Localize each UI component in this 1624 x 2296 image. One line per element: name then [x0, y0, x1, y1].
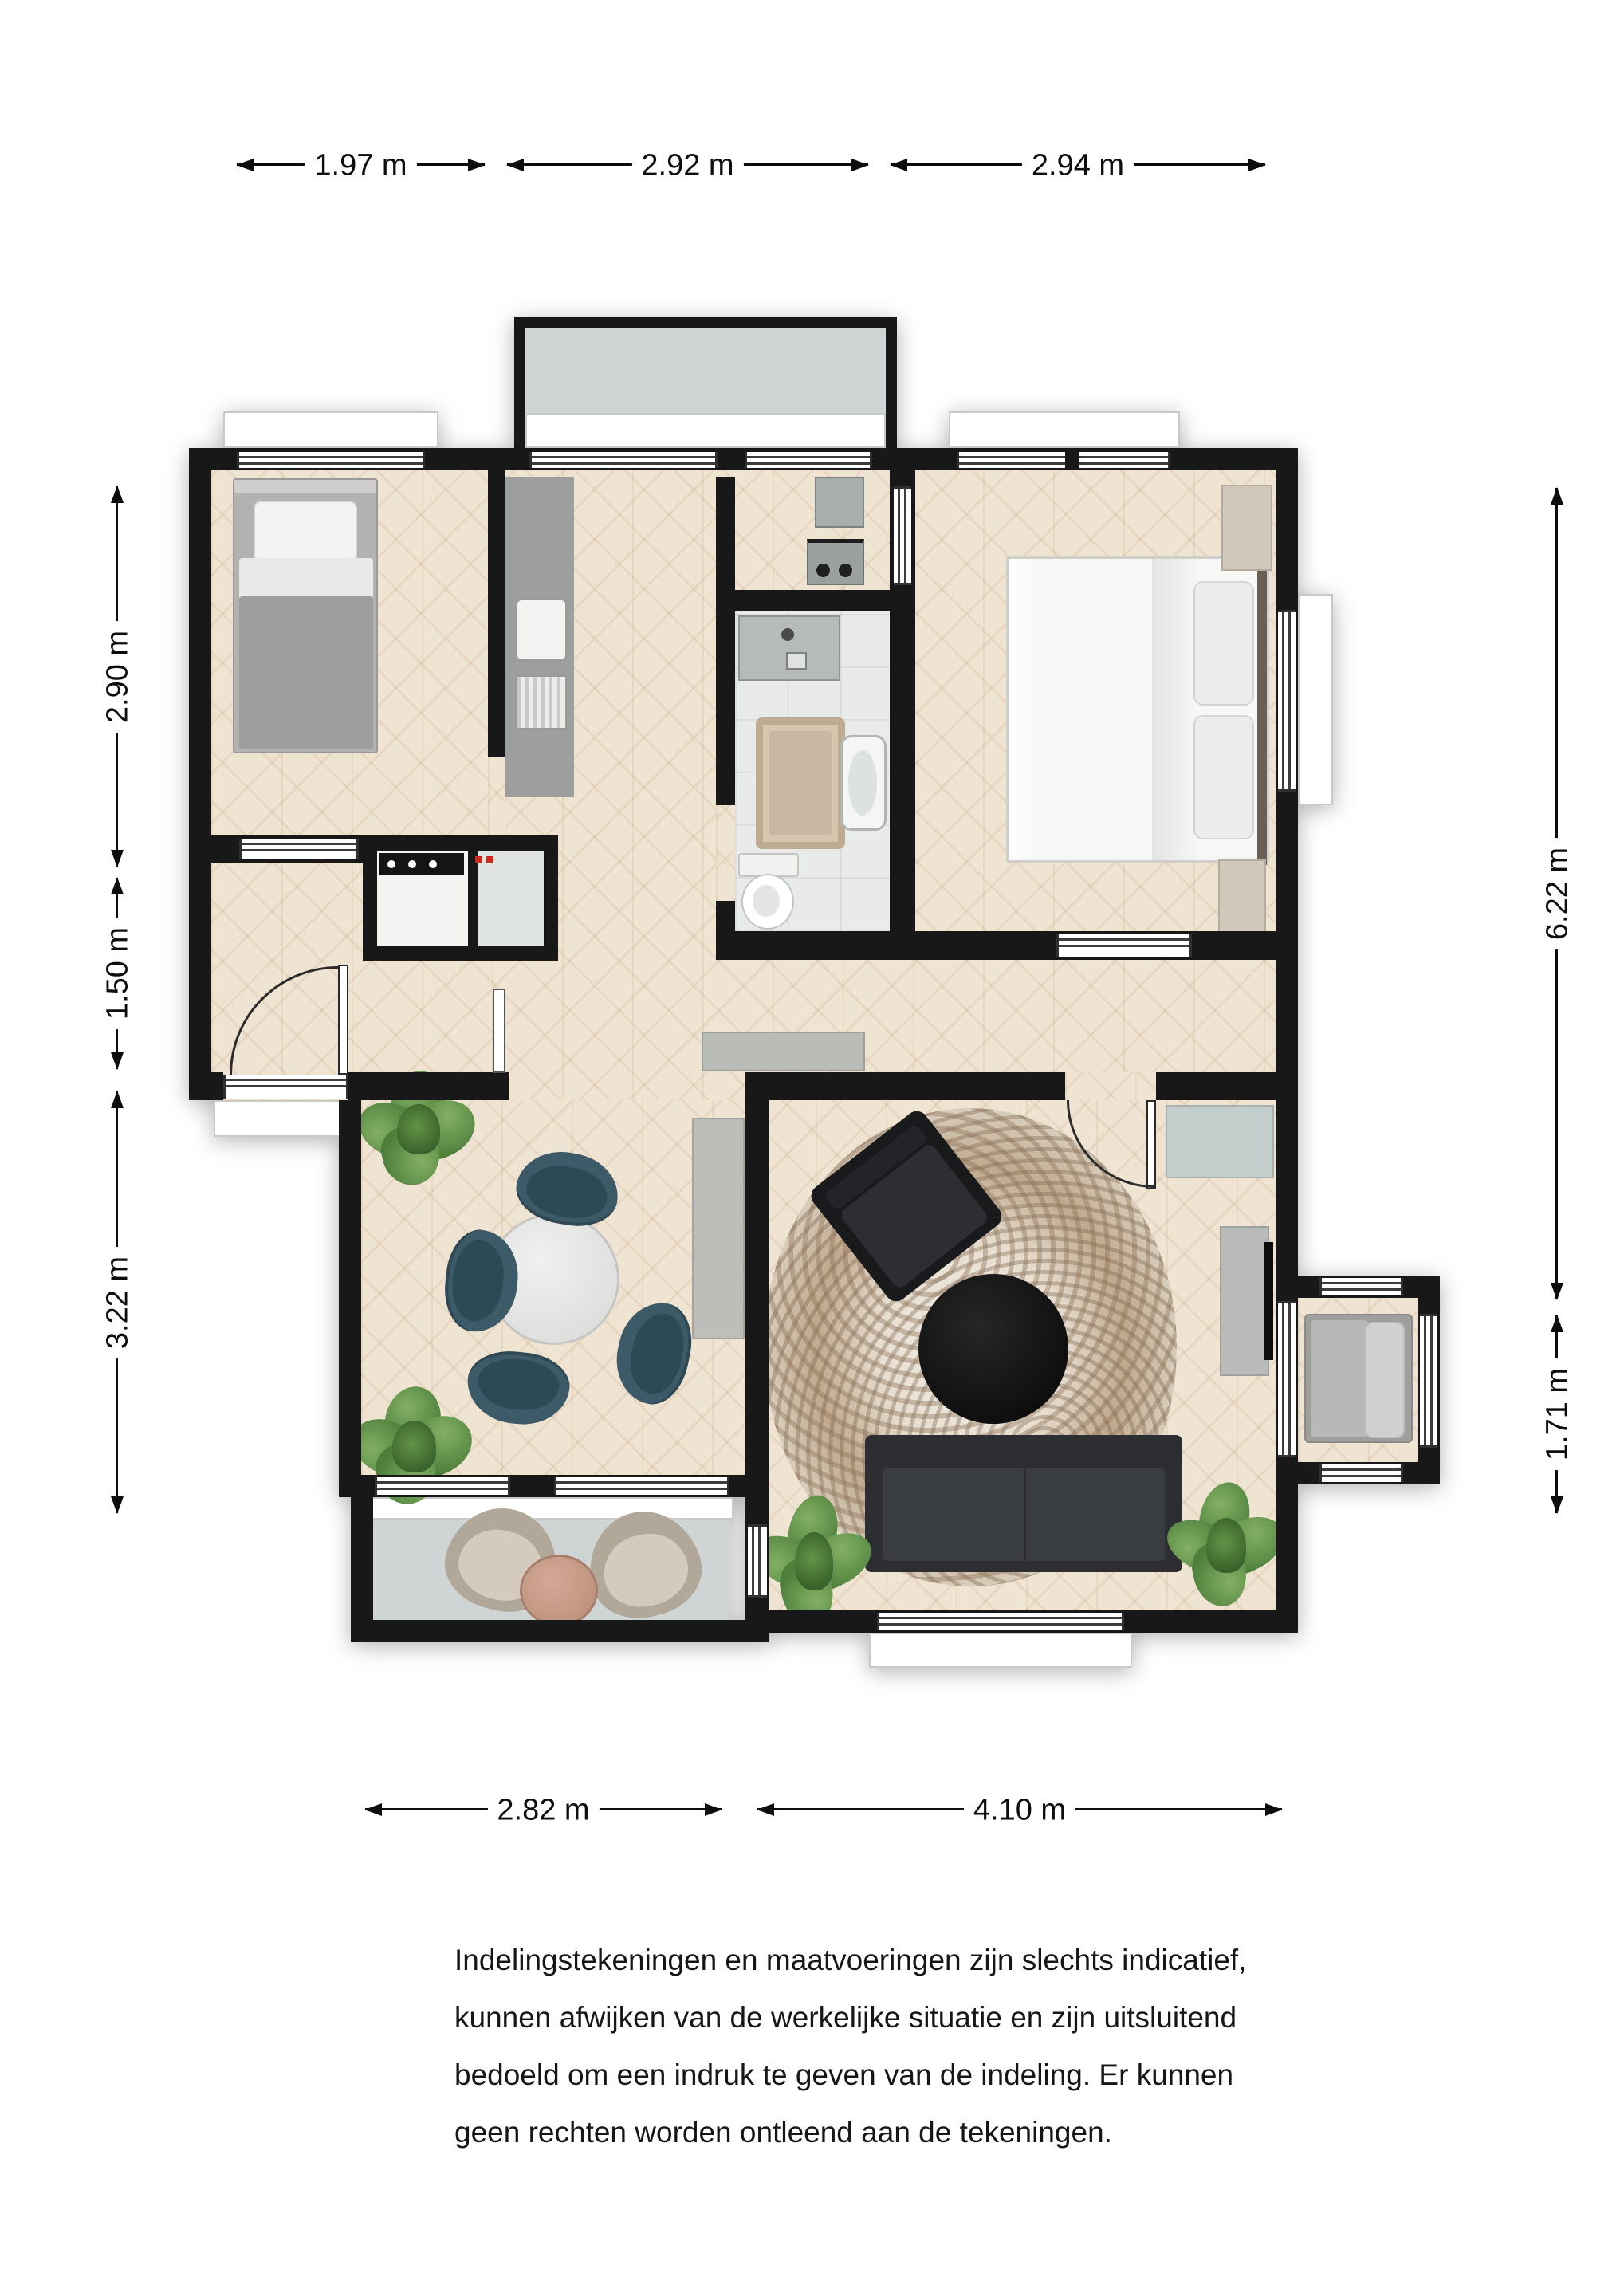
storage-cabinet	[1166, 1105, 1274, 1178]
wall-bathroom-top	[716, 590, 915, 611]
bed-headboard	[234, 480, 376, 493]
dimension-label: 1.97 m	[305, 147, 416, 185]
sideboard	[692, 1118, 745, 1339]
bed-sheet-fold	[239, 558, 373, 600]
window	[877, 1613, 1124, 1630]
window	[1319, 1464, 1403, 1482]
bath-mat	[756, 717, 845, 849]
stove-knob-red	[475, 856, 482, 863]
single-bed	[233, 478, 378, 753]
lounge-daybed	[1304, 1314, 1413, 1443]
wall-hall-south	[189, 1072, 223, 1100]
dimension-bottom-2: 4.10 m	[757, 1808, 1282, 1810]
dimension-left-1: 2.90 m	[116, 486, 118, 867]
wall-bathroom-bottom	[716, 931, 915, 960]
dimension-label: 3.22 m	[100, 1246, 137, 1358]
disclaimer-line: bedoeld om een indruk te geven van de in…	[454, 2058, 1233, 2092]
cooktop	[807, 539, 864, 585]
window	[375, 1477, 510, 1495]
balcony-wall	[514, 317, 525, 454]
tv-screen	[1264, 1242, 1273, 1360]
stove-knob-red	[486, 856, 493, 863]
sofa	[865, 1435, 1182, 1572]
window	[554, 1477, 729, 1495]
balcony-wall	[514, 317, 897, 328]
balcony-wall	[351, 1620, 769, 1642]
window	[1278, 610, 1296, 792]
window-sill	[525, 413, 886, 448]
nightstand	[1218, 859, 1266, 939]
faucet-icon	[781, 628, 794, 641]
entry-threshold	[214, 1100, 357, 1137]
dimension-label: 2.90 m	[100, 620, 137, 732]
wall-hall-south	[1156, 1072, 1276, 1100]
window	[745, 452, 872, 468]
window	[529, 452, 718, 468]
kitchen-counter	[502, 477, 574, 797]
balcony-side-table	[520, 1555, 598, 1626]
wall-bedroom1-right	[488, 470, 505, 757]
dimension-label: 4.10 m	[964, 1792, 1075, 1830]
plant	[767, 1497, 859, 1623]
floorplan-page: 1.97 m 2.92 m 2.94 m 2.90 m 1.50 m 3.22 …	[0, 0, 1624, 2296]
window	[1420, 1314, 1437, 1448]
closet-appliance	[379, 853, 464, 875]
entry-door-leaf	[338, 965, 348, 1075]
double-bed	[1006, 556, 1269, 863]
disclaimer-line: geen rechten worden ontleend aan de teke…	[454, 2116, 1112, 2149]
dimension-top-1: 1.97 m	[237, 163, 485, 166]
dimension-label: 1.50 m	[100, 918, 137, 1029]
bed-duvet-fold	[1009, 559, 1040, 860]
bathroom-vanity	[738, 615, 840, 681]
kitchen-oven	[515, 598, 568, 662]
dimension-left-3: 3.22 m	[116, 1091, 118, 1513]
dimension-label: 2.94 m	[1022, 147, 1134, 185]
window	[1319, 1278, 1403, 1295]
wall-hall-south	[745, 1072, 1065, 1100]
window	[237, 452, 425, 468]
window-sill	[949, 411, 1180, 448]
bed-pillow	[1193, 715, 1254, 839]
interior-window	[239, 839, 359, 859]
hall-console	[702, 1032, 865, 1071]
bed-pillow	[1193, 581, 1254, 706]
balcony-wall	[886, 317, 897, 454]
dimension-label: 1.71 m	[1539, 1358, 1577, 1470]
dimension-right-2: 1.71 m	[1555, 1315, 1558, 1513]
bedroom2-door-glazed	[1056, 934, 1192, 957]
dimension-top-2: 2.92 m	[507, 163, 868, 166]
dimension-top-3: 2.94 m	[891, 163, 1265, 166]
window-sill	[869, 1633, 1132, 1668]
window-sill	[223, 411, 438, 448]
window	[957, 452, 1170, 468]
plant	[1178, 1484, 1272, 1604]
wash-basin	[840, 735, 887, 831]
washing-machine	[815, 477, 864, 528]
dimension-label: 6.22 m	[1539, 838, 1577, 949]
interior-window	[894, 486, 911, 585]
window-balcony-door	[1278, 1301, 1296, 1457]
window-sill	[1298, 594, 1333, 805]
wall-dining-left	[339, 1100, 361, 1497]
bed-pillow	[254, 501, 357, 563]
tv-console	[1220, 1226, 1269, 1376]
door-opening-bathroom	[716, 805, 735, 901]
bed-blanket	[239, 596, 373, 749]
entry-door	[223, 1075, 348, 1099]
door-opening-living	[1065, 1072, 1156, 1100]
kitchen-sink-drainer	[515, 674, 568, 730]
door-opening-bedroom1	[488, 757, 505, 835]
interior-window	[748, 1524, 767, 1598]
wall-hall-south	[348, 1072, 509, 1100]
disclaimer-line: kunnen afwijken van de werkelijke situat…	[454, 2001, 1237, 2035]
coffee-table	[918, 1274, 1068, 1424]
dimension-right-1: 6.22 m	[1555, 488, 1558, 1299]
window-mullion	[1065, 448, 1079, 470]
nightstand	[1221, 485, 1272, 571]
glass-partition	[493, 989, 505, 1073]
dimension-bottom-1: 2.82 m	[365, 1808, 722, 1810]
daybed-pillow	[1365, 1322, 1405, 1438]
closet-cell	[478, 851, 544, 946]
bed-headboard	[1257, 556, 1267, 865]
dimension-label: 2.82 m	[487, 1792, 599, 1830]
toilet	[738, 853, 796, 930]
dimension-label: 2.92 m	[631, 147, 743, 185]
dimension-left-2: 1.50 m	[116, 878, 118, 1069]
disclaimer-line: Indelingstekeningen en maatvoeringen zij…	[454, 1944, 1246, 1977]
exterior-wall-left	[189, 448, 211, 1100]
bed-duvet-fold	[1152, 559, 1200, 860]
